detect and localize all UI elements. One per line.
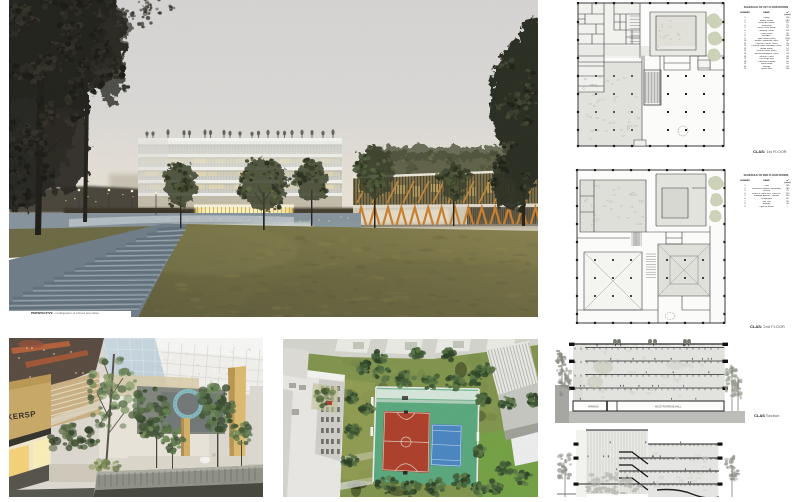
svg-text:MULTI-PURPOSE HALL: MULTI-PURPOSE HALL: [655, 406, 682, 409]
svg-text:PARKING: PARKING: [588, 406, 599, 409]
